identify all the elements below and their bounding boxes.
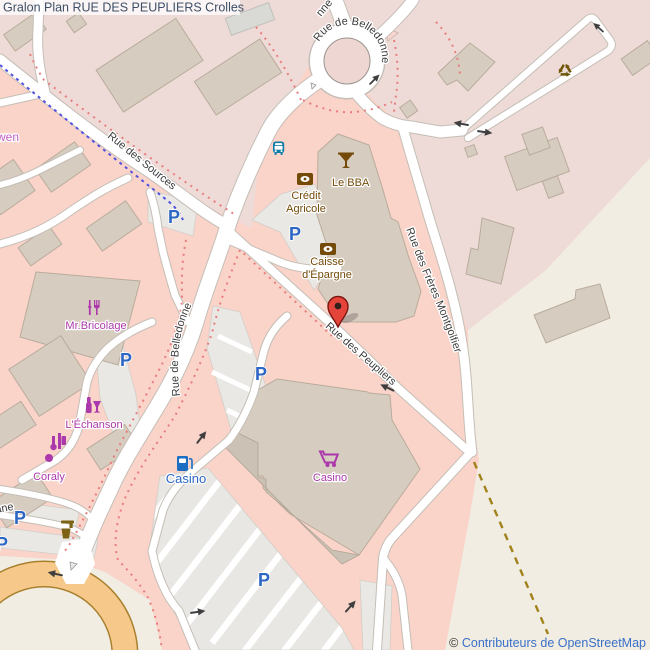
- svg-text:P: P: [289, 224, 301, 244]
- svg-text:P: P: [0, 534, 8, 554]
- svg-text:L'Échanson: L'Échanson: [65, 418, 122, 431]
- svg-text:Le BBA: Le BBA: [332, 177, 370, 189]
- svg-text:P: P: [168, 207, 180, 227]
- svg-text:© Contributeurs de OpenStreetM: © Contributeurs de OpenStreetMap: [449, 636, 646, 650]
- svg-text:P: P: [255, 364, 267, 384]
- svg-text:Crédit: Crédit: [291, 190, 320, 202]
- svg-text:Coraly: Coraly: [33, 471, 65, 483]
- svg-text:Gralon Plan RUE DES PEUPLIERS: Gralon Plan RUE DES PEUPLIERS Crolles: [3, 1, 244, 15]
- svg-text:Casino: Casino: [313, 472, 347, 484]
- svg-text:Caisse: Caisse: [310, 256, 344, 268]
- svg-text:Agricole: Agricole: [286, 203, 326, 215]
- svg-text:d'Épargne: d'Épargne: [302, 268, 352, 281]
- svg-text:Mr.Bricolage: Mr.Bricolage: [65, 320, 126, 332]
- svg-text:wen: wen: [0, 130, 19, 144]
- svg-text:P: P: [258, 570, 270, 590]
- svg-text:Casino: Casino: [166, 471, 206, 486]
- svg-text:P: P: [14, 508, 26, 528]
- svg-text:P: P: [120, 350, 132, 370]
